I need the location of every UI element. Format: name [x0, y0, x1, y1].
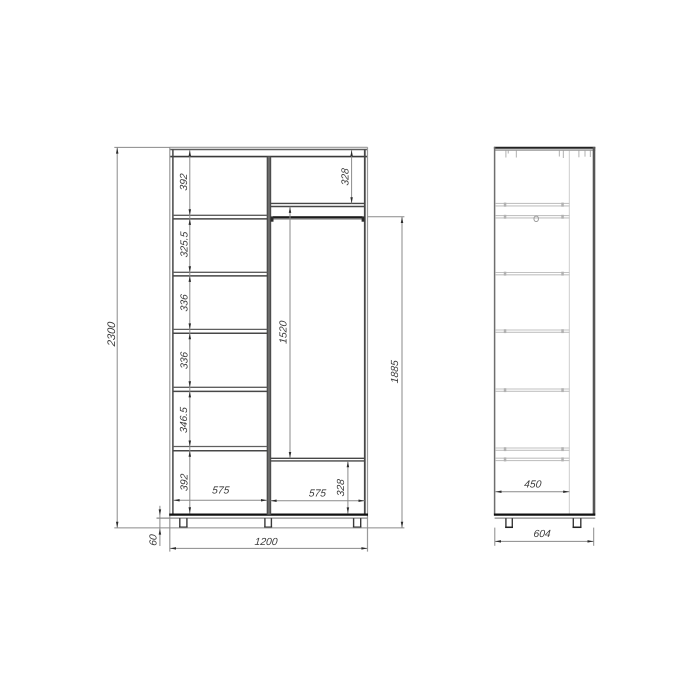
svg-text:2300: 2300: [106, 320, 118, 347]
svg-text:392: 392: [179, 473, 190, 491]
svg-text:346.5: 346.5: [179, 406, 190, 433]
svg-text:575: 575: [308, 489, 326, 500]
svg-text:1885: 1885: [390, 360, 401, 384]
svg-text:328: 328: [336, 478, 347, 496]
svg-text:328: 328: [340, 168, 351, 186]
svg-text:450: 450: [524, 479, 542, 490]
svg-text:392: 392: [179, 173, 190, 191]
svg-text:336: 336: [179, 294, 190, 312]
svg-text:575: 575: [212, 485, 230, 496]
svg-text:1200: 1200: [254, 537, 278, 548]
svg-text:1520: 1520: [278, 320, 289, 344]
svg-text:60: 60: [148, 534, 159, 547]
svg-text:604: 604: [533, 529, 551, 540]
svg-text:336: 336: [179, 351, 190, 369]
svg-text:325.5: 325.5: [179, 231, 190, 258]
